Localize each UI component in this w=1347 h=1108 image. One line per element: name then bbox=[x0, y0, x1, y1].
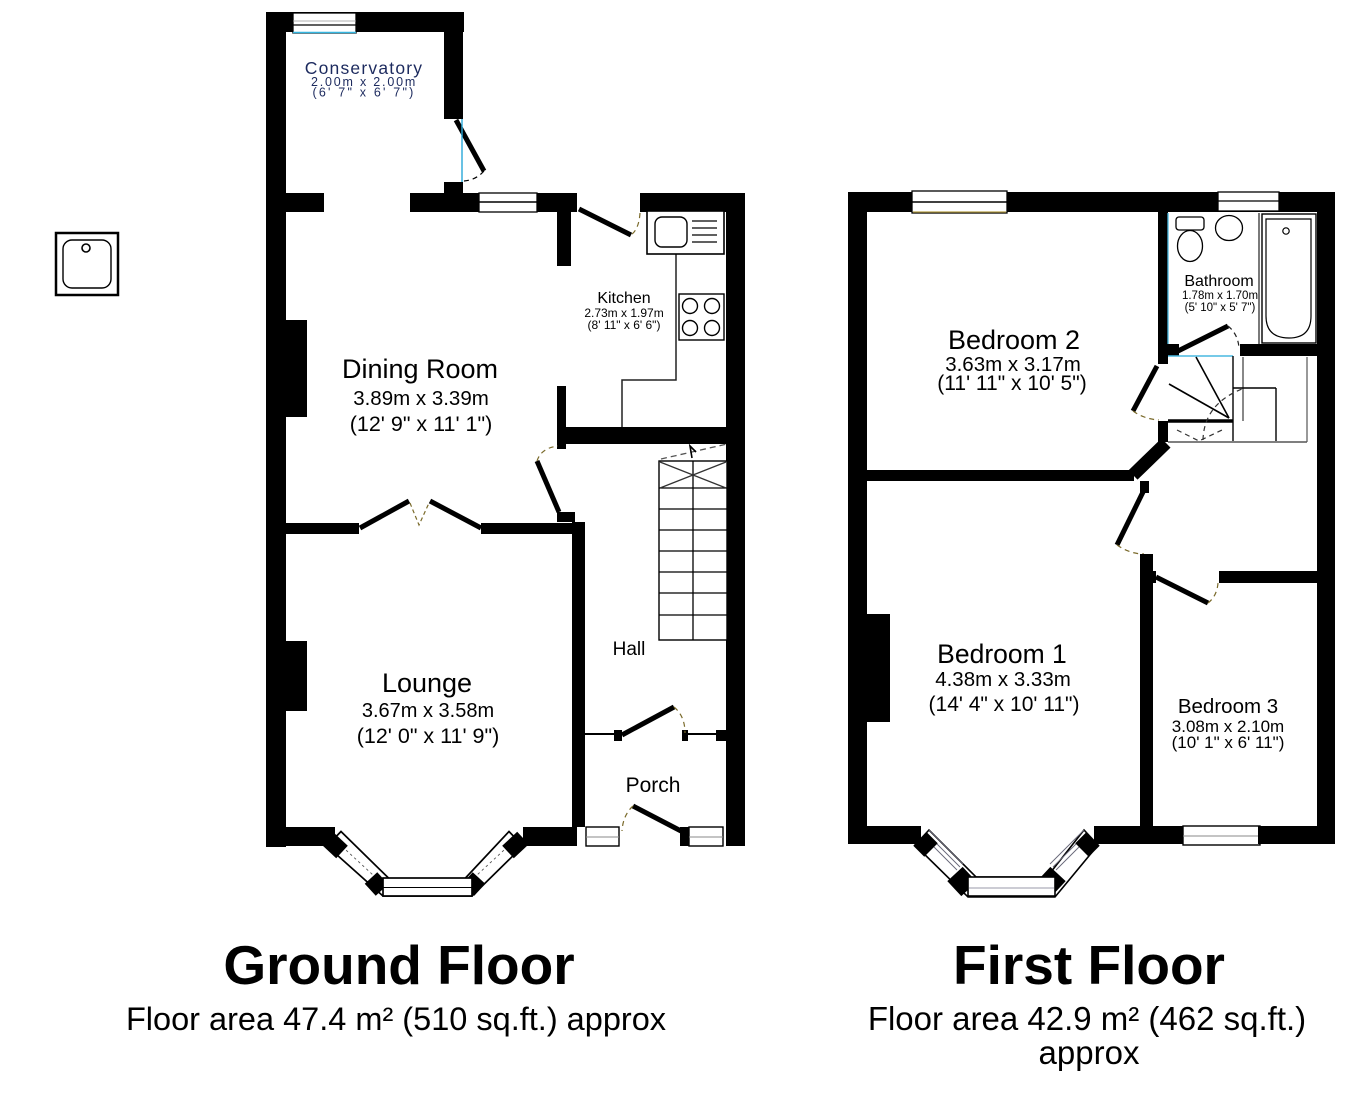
svg-text:(12' 9" x 11' 1"): (12' 9" x 11' 1") bbox=[350, 412, 493, 436]
svg-text:Ground Floor: Ground Floor bbox=[223, 934, 574, 996]
svg-text:(6' 7" x 6' 7"): (6' 7" x 6' 7") bbox=[313, 86, 416, 100]
svg-text:Floor area 47.4 m² (510 sq.ft.: Floor area 47.4 m² (510 sq.ft.) approx bbox=[126, 1001, 666, 1037]
svg-text:(14' 4" x 10' 11"): (14' 4" x 10' 11") bbox=[929, 693, 1080, 716]
svg-text:(10' 1" x 6' 11"): (10' 1" x 6' 11") bbox=[1172, 733, 1285, 752]
svg-text:Porch: Porch bbox=[626, 774, 681, 797]
svg-text:Floor area 42.9 m² (462 sq.ft.: Floor area 42.9 m² (462 sq.ft.) bbox=[868, 1000, 1306, 1037]
svg-text:Hall: Hall bbox=[613, 639, 646, 660]
svg-text:4.38m x 3.33m: 4.38m x 3.33m bbox=[935, 668, 1071, 691]
svg-text:Bathroom: Bathroom bbox=[1184, 273, 1253, 290]
svg-text:Bedroom 1: Bedroom 1 bbox=[937, 639, 1067, 669]
svg-text:Bedroom 2: Bedroom 2 bbox=[948, 325, 1080, 355]
svg-text:Dining Room: Dining Room bbox=[342, 354, 498, 384]
svg-text:3.89m x 3.39m: 3.89m x 3.39m bbox=[353, 387, 489, 410]
svg-text:Bedroom 3: Bedroom 3 bbox=[1178, 695, 1278, 718]
svg-text:approx: approx bbox=[1039, 1034, 1140, 1071]
svg-text:(8' 11" x 6' 6"): (8' 11" x 6' 6") bbox=[588, 318, 661, 332]
svg-text:(5' 10" x 5' 7"): (5' 10" x 5' 7") bbox=[1185, 302, 1256, 314]
svg-text:(11' 11" x 10' 5"): (11' 11" x 10' 5") bbox=[937, 372, 1086, 395]
svg-text:1.78m x 1.70m: 1.78m x 1.70m bbox=[1182, 290, 1258, 302]
svg-text:(12' 0" x 11' 9"): (12' 0" x 11' 9") bbox=[357, 724, 500, 748]
svg-text:First Floor: First Floor bbox=[953, 934, 1225, 996]
svg-text:3.67m x 3.58m: 3.67m x 3.58m bbox=[362, 700, 494, 722]
svg-text:Kitchen: Kitchen bbox=[597, 290, 650, 307]
svg-text:Lounge: Lounge bbox=[382, 668, 472, 698]
